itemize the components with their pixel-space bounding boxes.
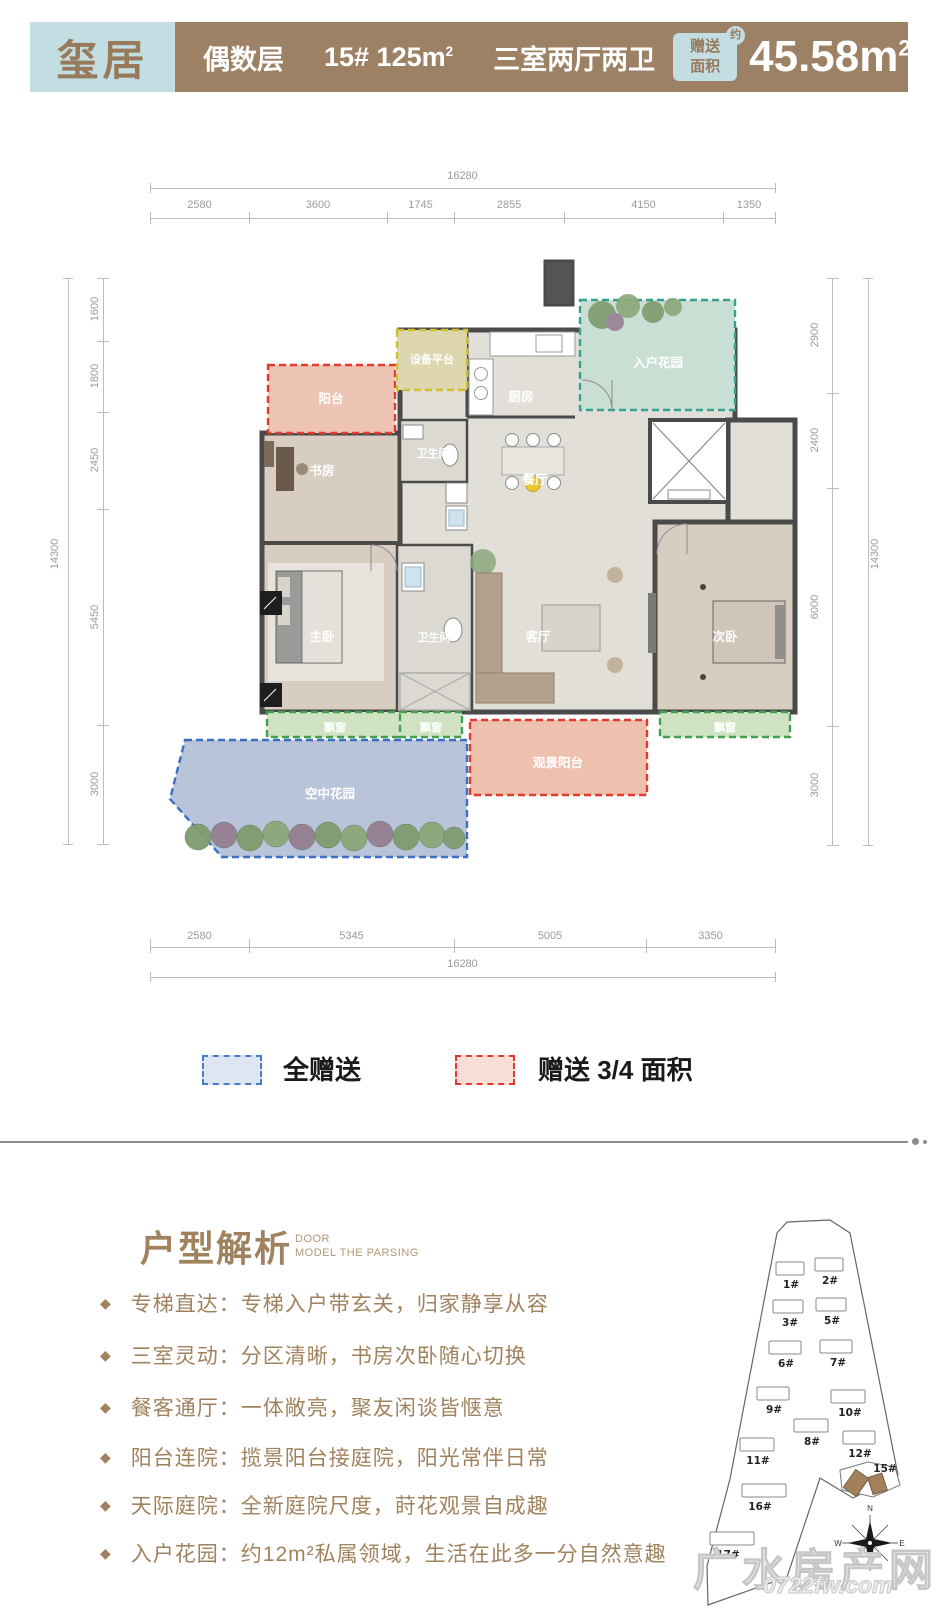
dim-top-seg: 4150	[564, 199, 723, 211]
legend-label-full-gift: 全赠送	[283, 1055, 361, 1085]
building-label: 3#	[782, 1317, 798, 1329]
building-label: 6#	[778, 1358, 794, 1370]
room-label-bath2: 卫生间	[418, 630, 451, 644]
approx-circle: 约	[726, 26, 745, 45]
unit-label: 15# 125m2	[324, 42, 453, 73]
building-1	[776, 1262, 804, 1275]
analysis-bullet: ◆ 阳台连院：揽景阳台接庭院，阳光常伴日常	[100, 1442, 549, 1472]
diamond-icon: ◆	[100, 1399, 111, 1416]
analysis-bullet: ◆ 餐客通厅：一体敞亮，聚友闲谈皆惬意	[100, 1392, 505, 1422]
building-6	[769, 1341, 801, 1354]
dim-bottom-seg: 5005	[454, 930, 646, 942]
building-11	[740, 1438, 774, 1451]
legend-swatch-partial-gift	[455, 1055, 515, 1085]
building-3	[773, 1300, 803, 1313]
gift-area-value: 45.58m2	[749, 32, 910, 82]
analysis-subtitle: DOOR MODEL THE PARSING	[295, 1232, 419, 1260]
building-8	[794, 1419, 828, 1432]
dim-bottom-seg: 2580	[150, 930, 249, 942]
dim-top-seg: 3600	[249, 199, 387, 211]
dim-left-seg: 1800	[89, 356, 101, 396]
analysis-bullet: ◆ 三室灵动：分区清晰，书房次卧随心切换	[100, 1340, 527, 1370]
elevator-shaft	[650, 420, 728, 502]
dim-right-total: 14300	[869, 531, 881, 577]
analysis-title: 户型解析	[140, 1220, 292, 1272]
room-label-bath1: 卫生间	[417, 446, 450, 460]
diamond-icon: ◆	[100, 1295, 111, 1312]
diamond-icon: ◆	[100, 1497, 111, 1514]
logo-box: 玺居	[30, 22, 175, 92]
room-label-balcony: 阳台	[318, 391, 343, 406]
room-label-baywindow1: 飘窗	[324, 720, 346, 734]
dim-left-seg: 2450	[89, 440, 101, 480]
gift-area-badge: 赠送 面积 约	[673, 33, 737, 81]
room-label-entry-garden: 入户花园	[633, 355, 683, 370]
room-label-living: 客厅	[524, 629, 551, 644]
analysis-bullet: ◆ 天际庭院：全新庭院尺度，莳花观景自成趣	[100, 1490, 549, 1520]
dim-left-seg: 5450	[89, 597, 101, 637]
dim-top-total: 16280	[150, 170, 775, 182]
header-bar: 玺居 偶数层 15# 125m2 三室两厅两卫 赠送 面积 约 45.58m2	[30, 22, 908, 92]
flyer-page: 玺居 偶数层 15# 125m2 三室两厅两卫 赠送 面积 约 45.58m2 …	[0, 0, 937, 1608]
room-label-kitchen: 厨房	[508, 389, 533, 404]
dim-top-seg: 2855	[454, 199, 564, 211]
room-label-master: 主卧	[309, 629, 335, 644]
legend-label-partial-gift: 赠送 3/4 面积	[538, 1055, 693, 1085]
section-divider	[0, 1141, 908, 1143]
building-16	[742, 1484, 786, 1497]
room-label-bedroom2: 次卧	[712, 629, 738, 644]
dim-left-total: 14300	[49, 531, 61, 577]
dim-bottom-seg: 3350	[646, 930, 775, 942]
dim-bottom-total: 16280	[150, 958, 775, 970]
watermark-url: 0722fw.com	[763, 1572, 893, 1599]
building-12	[843, 1431, 875, 1444]
dim-bottom-seg: 5345	[249, 930, 454, 942]
room-label-view-balcony: 观景阳台	[533, 755, 583, 770]
divider-dot	[912, 1138, 919, 1145]
building-label: 10#	[838, 1407, 862, 1419]
dim-left-seg: 1600	[89, 289, 101, 329]
building-9	[757, 1387, 789, 1400]
building-label: 1#	[783, 1279, 799, 1291]
diamond-icon: ◆	[100, 1347, 111, 1364]
analysis-bullet: ◆ 入户花园：约12m²私属领域，生活在此多一分自然意趣	[100, 1538, 667, 1568]
diamond-icon: ◆	[100, 1545, 111, 1562]
dim-line	[150, 188, 775, 189]
room-corridor	[728, 420, 795, 524]
building-label: 5#	[824, 1315, 840, 1327]
diamond-icon: ◆	[100, 1449, 111, 1466]
building-7	[820, 1340, 852, 1353]
building-label: 7#	[830, 1357, 846, 1369]
building-label: 8#	[804, 1436, 820, 1448]
building-label: 12#	[848, 1448, 872, 1460]
dim-top-seg: 2580	[150, 199, 249, 211]
floor-plan-area: 16280 2580 3600 1745 2855 4150 1350 1430…	[40, 165, 900, 995]
room-label-equipment: 设备平台	[410, 352, 454, 366]
building-label: 11#	[746, 1455, 770, 1467]
building-label: 2#	[822, 1275, 838, 1287]
rooms-label: 三室两厅两卫	[493, 38, 655, 77]
building-2	[815, 1258, 843, 1271]
dim-top-seg: 1745	[387, 199, 454, 211]
logo-text: 玺居	[56, 27, 148, 88]
room-label-dining: 餐厅	[521, 472, 548, 487]
room-label-baywindow3: 飘窗	[714, 720, 736, 734]
floor-type-label: 偶数层	[203, 38, 284, 77]
floor-plan: 阳台 设备平台 厨房 入户花园 卫生间 书房 餐厅 主卧 卫生间 客厅 次卧 飘…	[150, 255, 830, 925]
building-label: 15#	[873, 1463, 897, 1475]
divider-dot	[923, 1140, 927, 1144]
dim-top-seg: 1350	[723, 199, 775, 211]
analysis-bullet: ◆ 专梯直达：专梯入户带玄关，归家静享从容	[100, 1288, 549, 1318]
room-label-study: 书房	[309, 463, 334, 478]
dim-left-seg: 3000	[89, 764, 101, 804]
master-bed	[268, 563, 384, 681]
building-label: 9#	[766, 1404, 782, 1416]
room-label-sky-garden: 空中花园	[305, 786, 355, 801]
building-5	[816, 1298, 846, 1311]
legend-swatch-full-gift	[202, 1055, 262, 1085]
room-label-baywindow2: 飘窗	[420, 720, 442, 734]
building-10	[831, 1390, 865, 1403]
compass-n: N	[867, 1504, 873, 1513]
building-label: 16#	[748, 1501, 772, 1513]
